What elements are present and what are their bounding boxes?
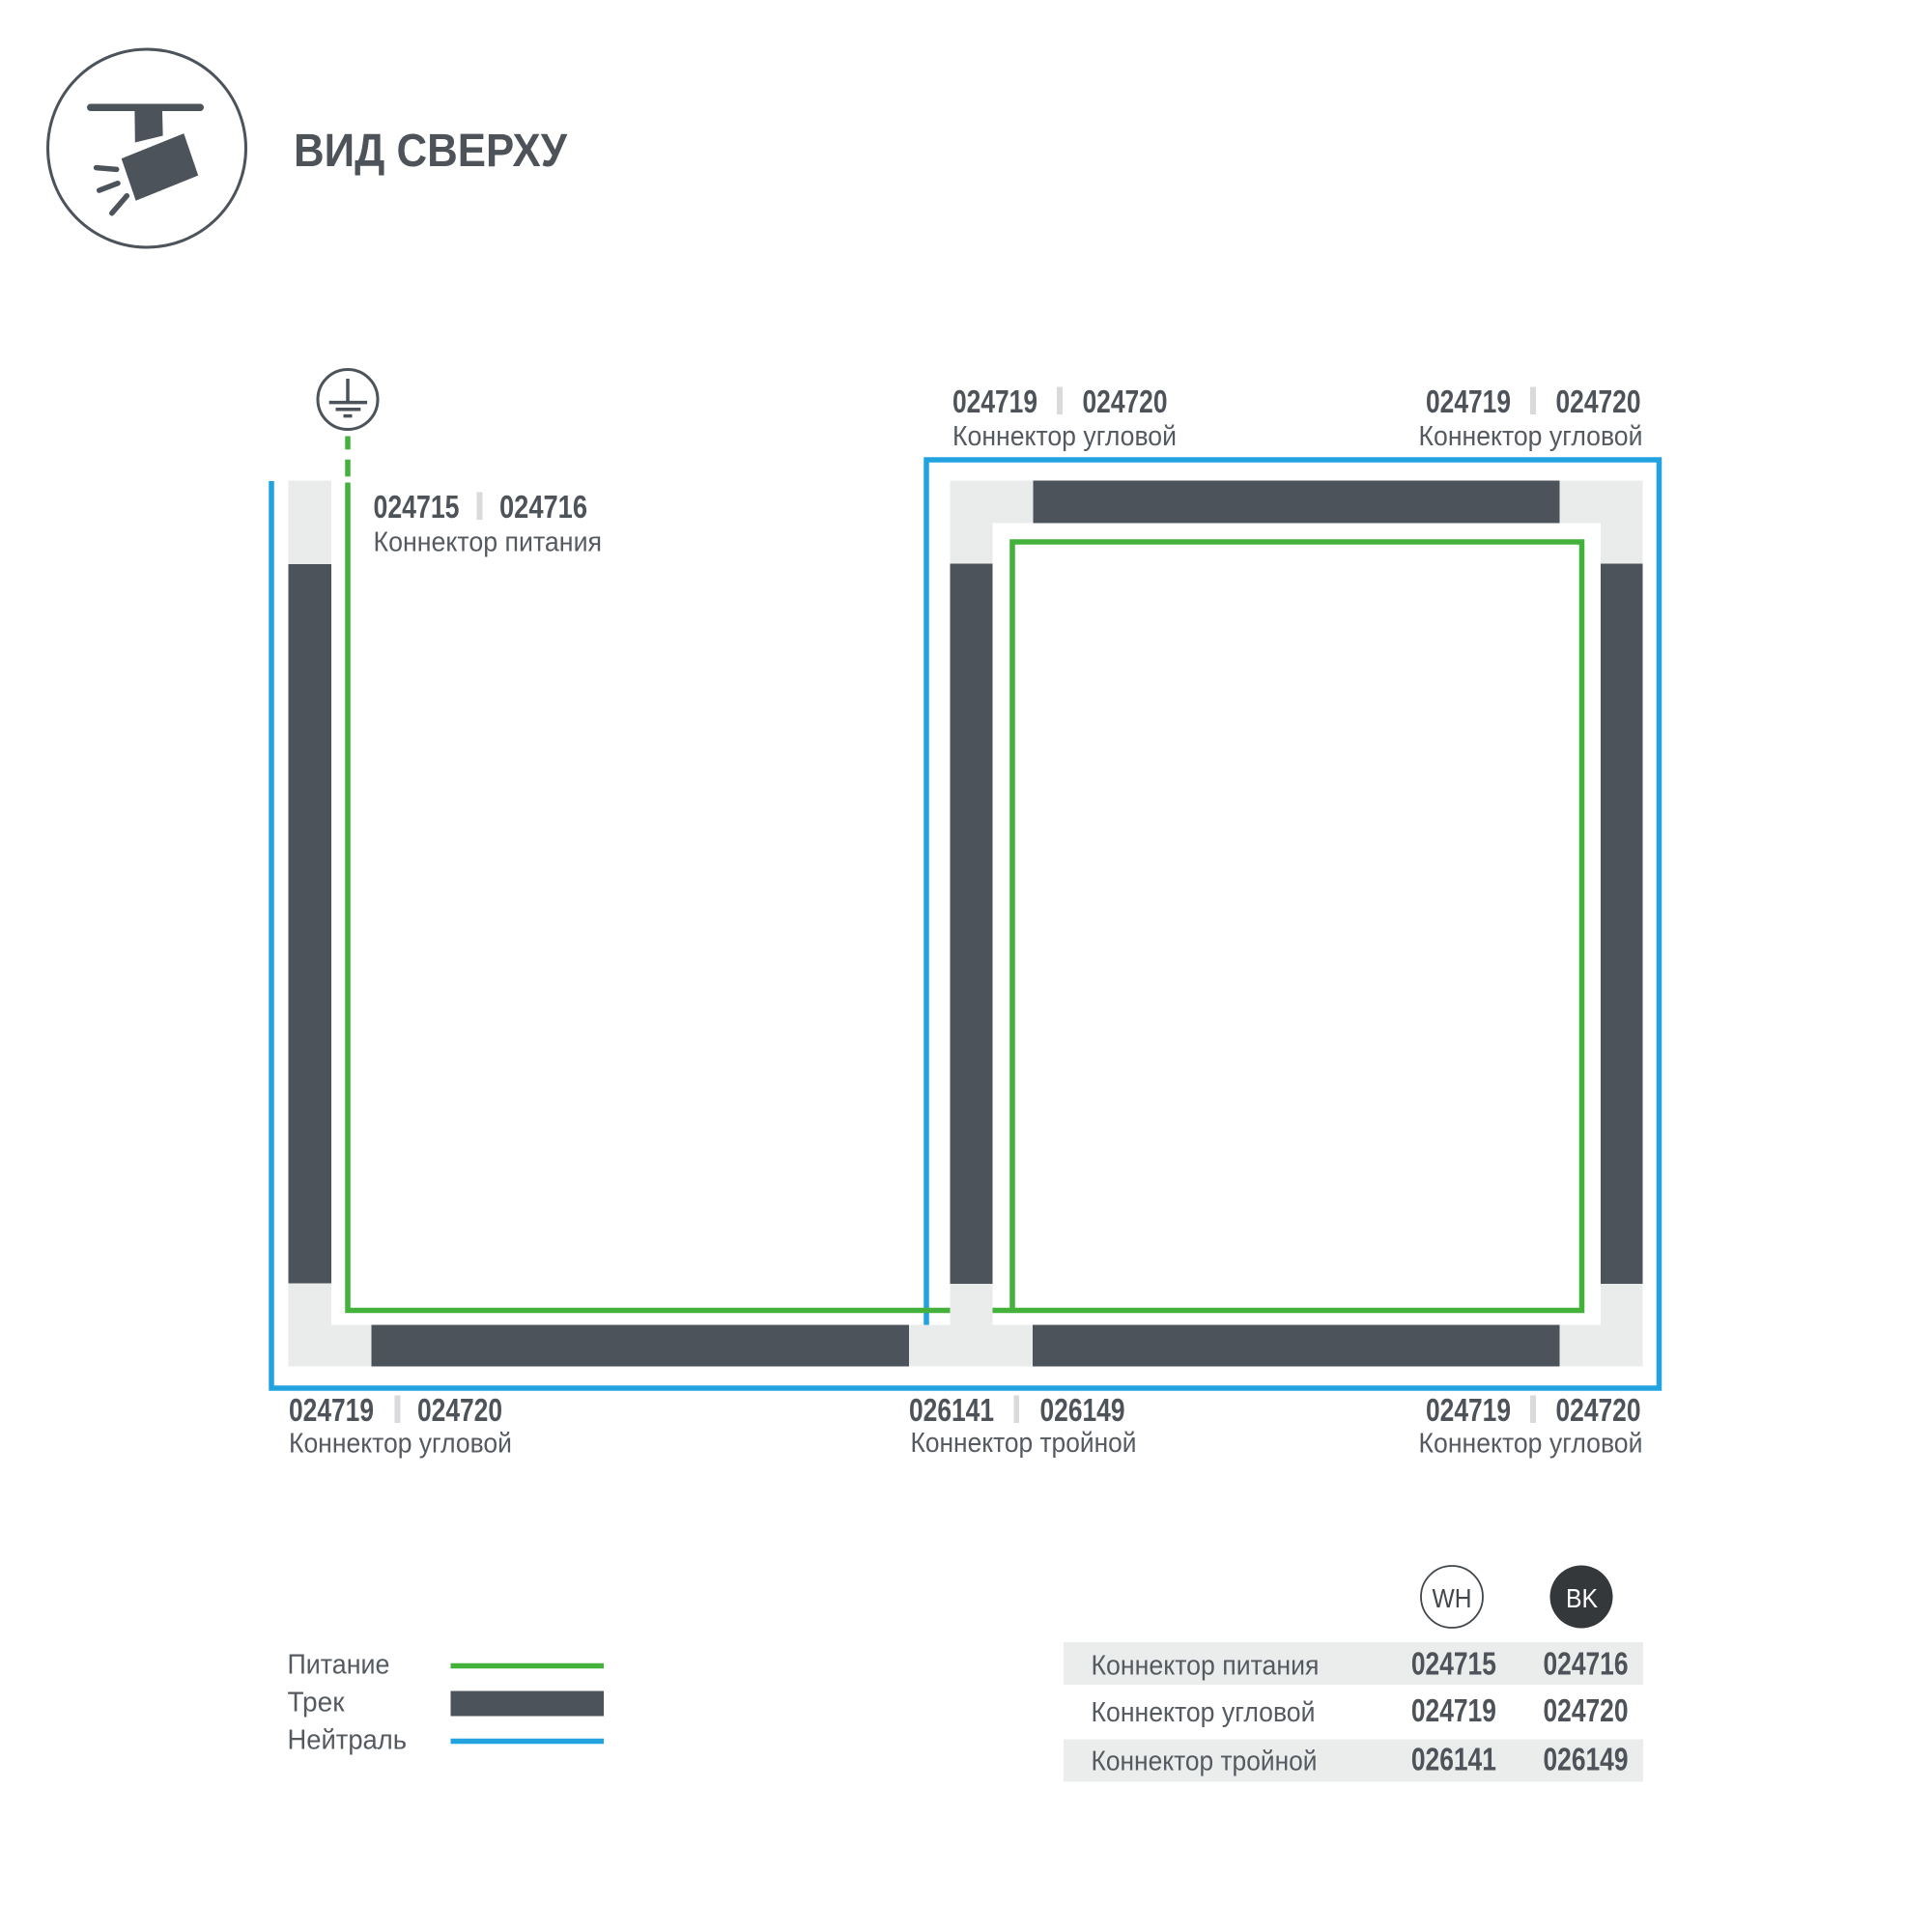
svg-text:WH: WH: [1433, 1583, 1472, 1613]
svg-text:Трек: Трек: [288, 1688, 345, 1719]
svg-text:026149: 026149: [1544, 1742, 1629, 1777]
svg-text:024715: 024715: [1411, 1646, 1496, 1682]
svg-text:024719: 024719: [952, 384, 1037, 419]
svg-text:024720: 024720: [1556, 1392, 1641, 1428]
svg-text:024719: 024719: [289, 1392, 374, 1428]
svg-text:Коннектор тройной: Коннектор тройной: [911, 1428, 1137, 1459]
svg-text:Коннектор питания: Коннектор питания: [374, 527, 603, 558]
svg-text:024720: 024720: [1544, 1692, 1629, 1728]
svg-text:Нейтраль: Нейтраль: [288, 1725, 408, 1756]
svg-text:Коннектор угловой: Коннектор угловой: [1092, 1697, 1316, 1728]
svg-text:024719: 024719: [1426, 1392, 1511, 1428]
svg-text:024716: 024716: [1544, 1646, 1629, 1682]
svg-text:Коннектор угловой: Коннектор угловой: [289, 1428, 512, 1459]
svg-text:Коннектор тройной: Коннектор тройной: [1092, 1747, 1318, 1777]
svg-text:026141: 026141: [1411, 1742, 1496, 1777]
svg-text:Питание: Питание: [288, 1650, 390, 1681]
svg-text:Коннектор угловой: Коннектор угловой: [952, 421, 1177, 452]
svg-text:026141: 026141: [909, 1392, 994, 1428]
svg-text:024719: 024719: [1411, 1692, 1496, 1728]
svg-text:Коннектор угловой: Коннектор угловой: [1419, 421, 1643, 452]
svg-text:024719: 024719: [1426, 384, 1511, 419]
svg-text:BK: BK: [1566, 1583, 1599, 1613]
svg-text:024715: 024715: [374, 489, 460, 525]
svg-text:024720: 024720: [417, 1392, 502, 1428]
svg-text:024720: 024720: [1556, 384, 1641, 419]
svg-text:ВИД СВЕРХУ: ВИД СВЕРХУ: [294, 126, 568, 177]
svg-text:Коннектор питания: Коннектор питания: [1092, 1651, 1320, 1682]
svg-text:Коннектор угловой: Коннектор угловой: [1419, 1428, 1643, 1459]
svg-text:024720: 024720: [1083, 384, 1168, 419]
svg-text:026149: 026149: [1040, 1392, 1125, 1428]
svg-text:024716: 024716: [499, 489, 587, 525]
